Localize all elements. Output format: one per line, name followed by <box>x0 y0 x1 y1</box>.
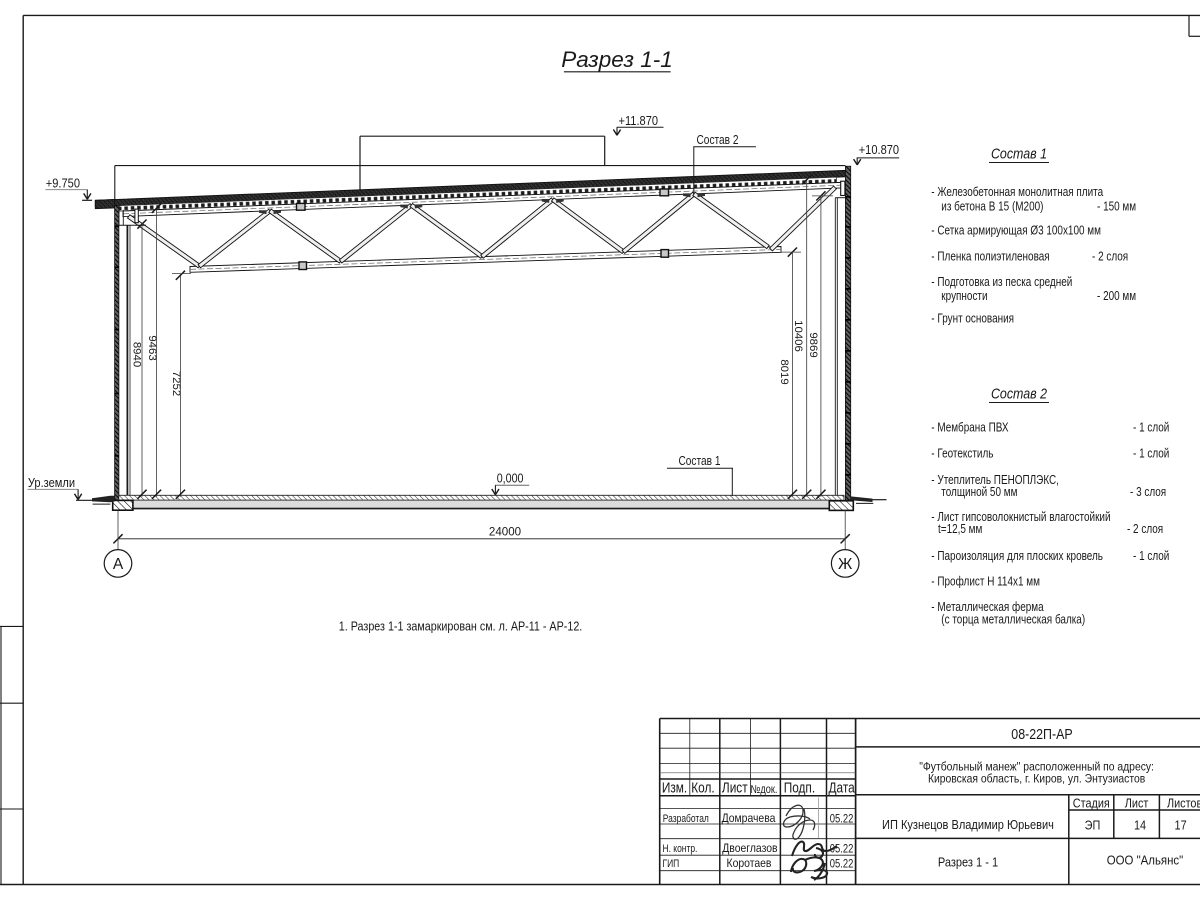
svg-text:ЭП: ЭП <box>1085 818 1101 833</box>
svg-text:№док.: №док. <box>751 784 778 796</box>
svg-text:- Подготовка из песка средней: - Подготовка из песка средней <box>931 276 1072 289</box>
svg-text:+9.750: +9.750 <box>46 176 81 191</box>
svg-text:0,000: 0,000 <box>497 472 524 486</box>
svg-text:толщиной 50 мм: толщиной 50 мм <box>941 486 1017 499</box>
svg-text:- 150 мм: - 150 мм <box>1097 201 1136 214</box>
svg-text:- Геотекстиль: - Геотекстиль <box>931 448 993 461</box>
svg-text:- Пленка полиэтиленовая: - Пленка полиэтиленовая <box>931 251 1049 264</box>
svg-text:7252: 7252 <box>170 371 182 396</box>
svg-text:- Мембрана ПВХ: - Мембрана ПВХ <box>931 422 1009 435</box>
svg-text:24000: 24000 <box>489 525 521 538</box>
svg-text:- 1 слой: - 1 слой <box>1133 422 1169 435</box>
svg-text:Двоеглазов: Двоеглазов <box>722 842 777 855</box>
svg-text:крупности: крупности <box>941 290 987 303</box>
svg-text:10406: 10406 <box>792 320 804 352</box>
svg-text:1. Разрез 1-1 замаркирован см.: 1. Разрез 1-1 замаркирован см. л. АР-11 … <box>339 619 582 634</box>
svg-text:- 1 слой: - 1 слой <box>1133 550 1169 563</box>
svg-text:ИП Кузнецов Владимир Юрьевич: ИП Кузнецов Владимир Юрьевич <box>882 817 1054 832</box>
svg-text:Состав 2: Состав 2 <box>991 386 1047 402</box>
svg-text:- Профлист Н 114х1 мм: - Профлист Н 114х1 мм <box>931 576 1040 589</box>
svg-text:Коротаев: Коротаев <box>727 857 772 870</box>
svg-text:из бетона В 15 (М200): из бетона В 15 (М200) <box>941 201 1043 214</box>
svg-text:ГИП: ГИП <box>662 858 679 870</box>
svg-text:Стадия: Стадия <box>1073 796 1110 811</box>
svg-text:Дата: Дата <box>829 779 856 796</box>
svg-text:Состав 2: Состав 2 <box>697 133 739 147</box>
svg-text:Кол.: Кол. <box>691 779 714 796</box>
svg-text:- 2 слоя: - 2 слоя <box>1092 251 1128 264</box>
svg-text:А: А <box>113 556 124 573</box>
svg-text:+10.870: +10.870 <box>859 142 900 157</box>
svg-text:Кировская область, г. Киров, у: Кировская область, г. Киров, ул. Энтузиа… <box>928 773 1145 786</box>
svg-text:Изм.: Изм. <box>662 779 687 796</box>
svg-text:- 1 слой: - 1 слой <box>1133 448 1169 461</box>
svg-text:9869: 9869 <box>807 332 819 357</box>
svg-text:17: 17 <box>1175 818 1187 833</box>
svg-text:8940: 8940 <box>131 342 143 367</box>
svg-text:Состав 1: Состав 1 <box>678 454 720 468</box>
svg-text:- Грунт основания: - Грунт основания <box>931 313 1014 326</box>
svg-text:Домрачева: Домрачева <box>722 812 776 825</box>
svg-text:9463: 9463 <box>146 335 158 360</box>
svg-text:Разработал: Разработал <box>663 813 709 825</box>
svg-text:05.22: 05.22 <box>830 857 854 870</box>
svg-text:"Футбольный манеж" расположенн: "Футбольный манеж" расположенный по адре… <box>919 761 1154 774</box>
svg-text:14: 14 <box>1134 818 1146 833</box>
svg-text:ООО "Альянс": ООО "Альянс" <box>1107 853 1183 868</box>
svg-text:Н. контр.: Н. контр. <box>662 843 697 855</box>
svg-text:Состав 1: Состав 1 <box>991 146 1047 162</box>
svg-text:Листов: Листов <box>1167 796 1200 811</box>
svg-text:- 200 мм: - 200 мм <box>1097 290 1136 303</box>
svg-text:t=12,5 мм: t=12,5 мм <box>938 523 983 536</box>
svg-text:- Металлическая ферма: - Металлическая ферма <box>931 601 1044 614</box>
svg-text:+11.870: +11.870 <box>618 113 658 128</box>
svg-text:Лист: Лист <box>722 779 748 796</box>
svg-text:Разрез 1-1: Разрез 1-1 <box>561 47 673 72</box>
svg-text:8019: 8019 <box>778 359 790 384</box>
svg-text:Разрез 1 - 1: Разрез 1 - 1 <box>938 855 999 870</box>
svg-text:Лист: Лист <box>1125 796 1149 811</box>
svg-text:- 3 слоя: - 3 слоя <box>1130 486 1166 499</box>
svg-text:- Железобетонная монолитная п: - Железобетонная монолитная плита <box>931 186 1103 199</box>
svg-text:- 2 слоя: - 2 слоя <box>1127 523 1163 536</box>
svg-text:- Пароизоляция для плоских кро: - Пароизоляция для плоских кровель <box>931 550 1103 563</box>
svg-text:05.22: 05.22 <box>830 812 854 825</box>
svg-text:- Сетка армирующая Ø3 100х100: - Сетка армирующая Ø3 100х100 мм <box>931 225 1101 238</box>
svg-text:Подп.: Подп. <box>784 779 815 796</box>
svg-text:Ж: Ж <box>838 556 853 573</box>
svg-text:Ур.земли: Ур.земли <box>28 476 75 491</box>
svg-text:(с торца металлическая балка): (с торца металлическая балка) <box>941 614 1085 627</box>
svg-text:08-22П-АР: 08-22П-АР <box>1011 726 1072 742</box>
